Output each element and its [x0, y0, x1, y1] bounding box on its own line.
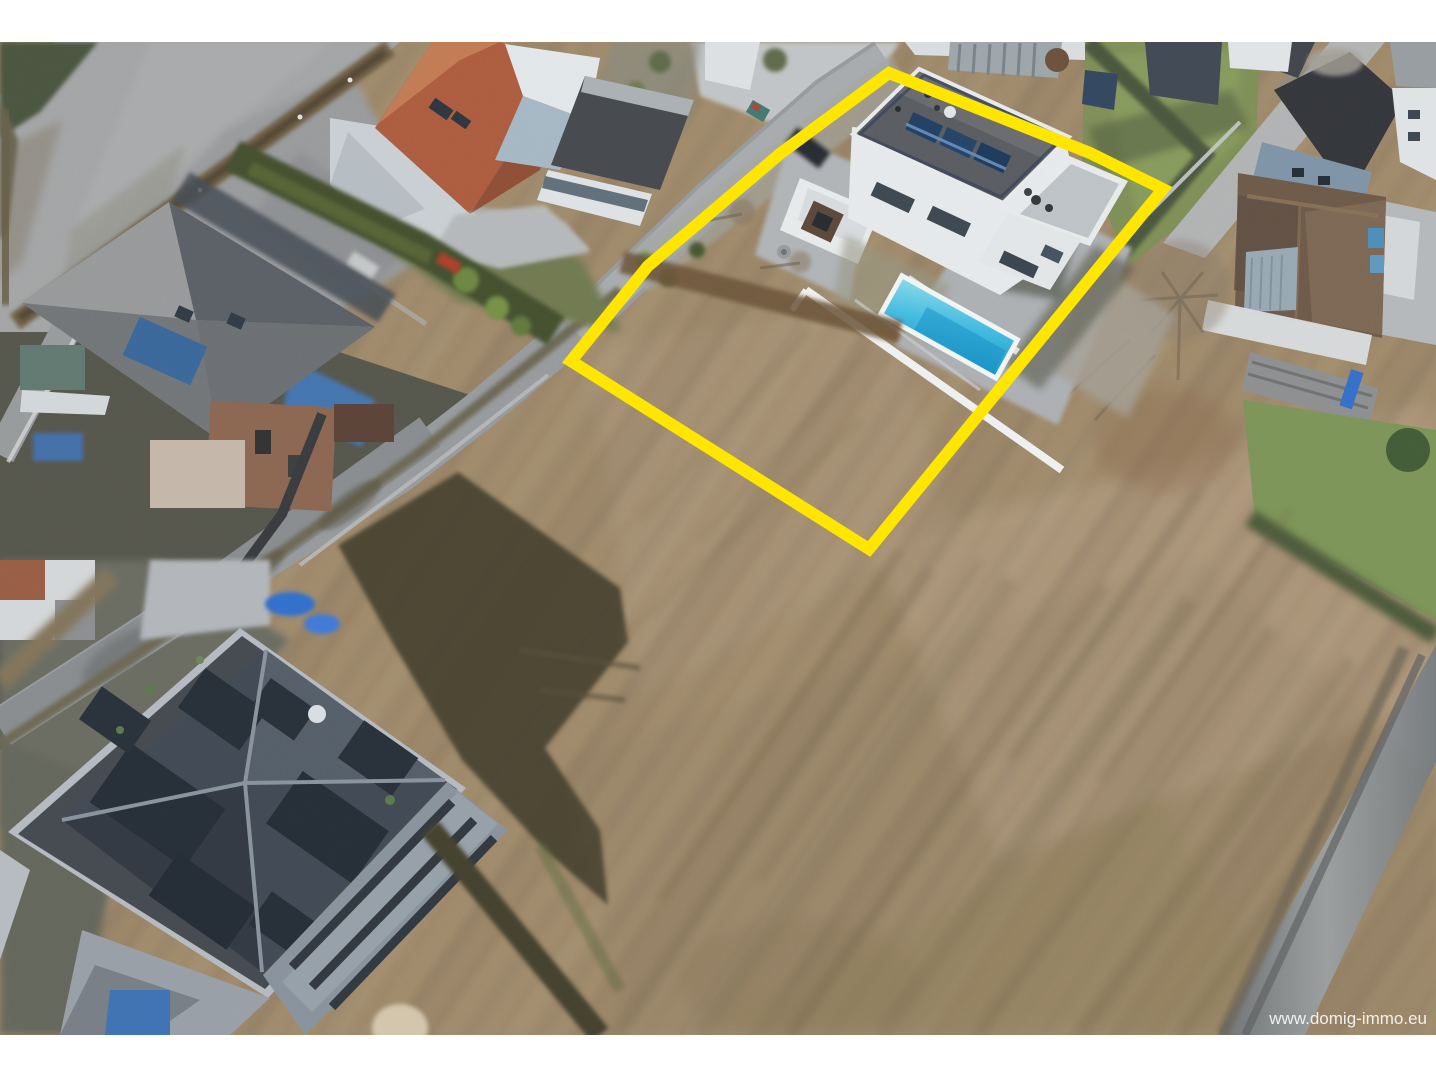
svg-text:www.domig-immo.eu: www.domig-immo.eu — [1268, 1009, 1427, 1028]
